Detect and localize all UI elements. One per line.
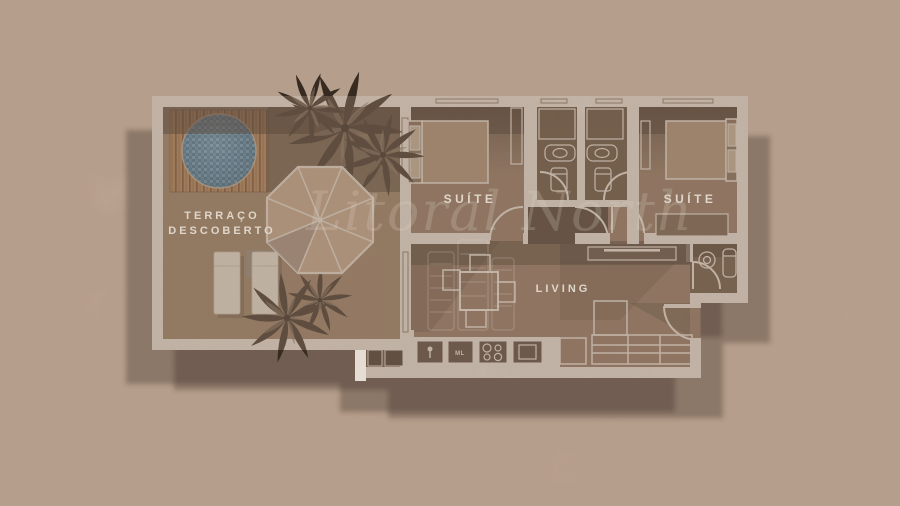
floor-plan-image: ML (0, 0, 900, 506)
floor-plan-canvas: ML (0, 0, 900, 506)
paper-grain-overlay (0, 0, 900, 506)
